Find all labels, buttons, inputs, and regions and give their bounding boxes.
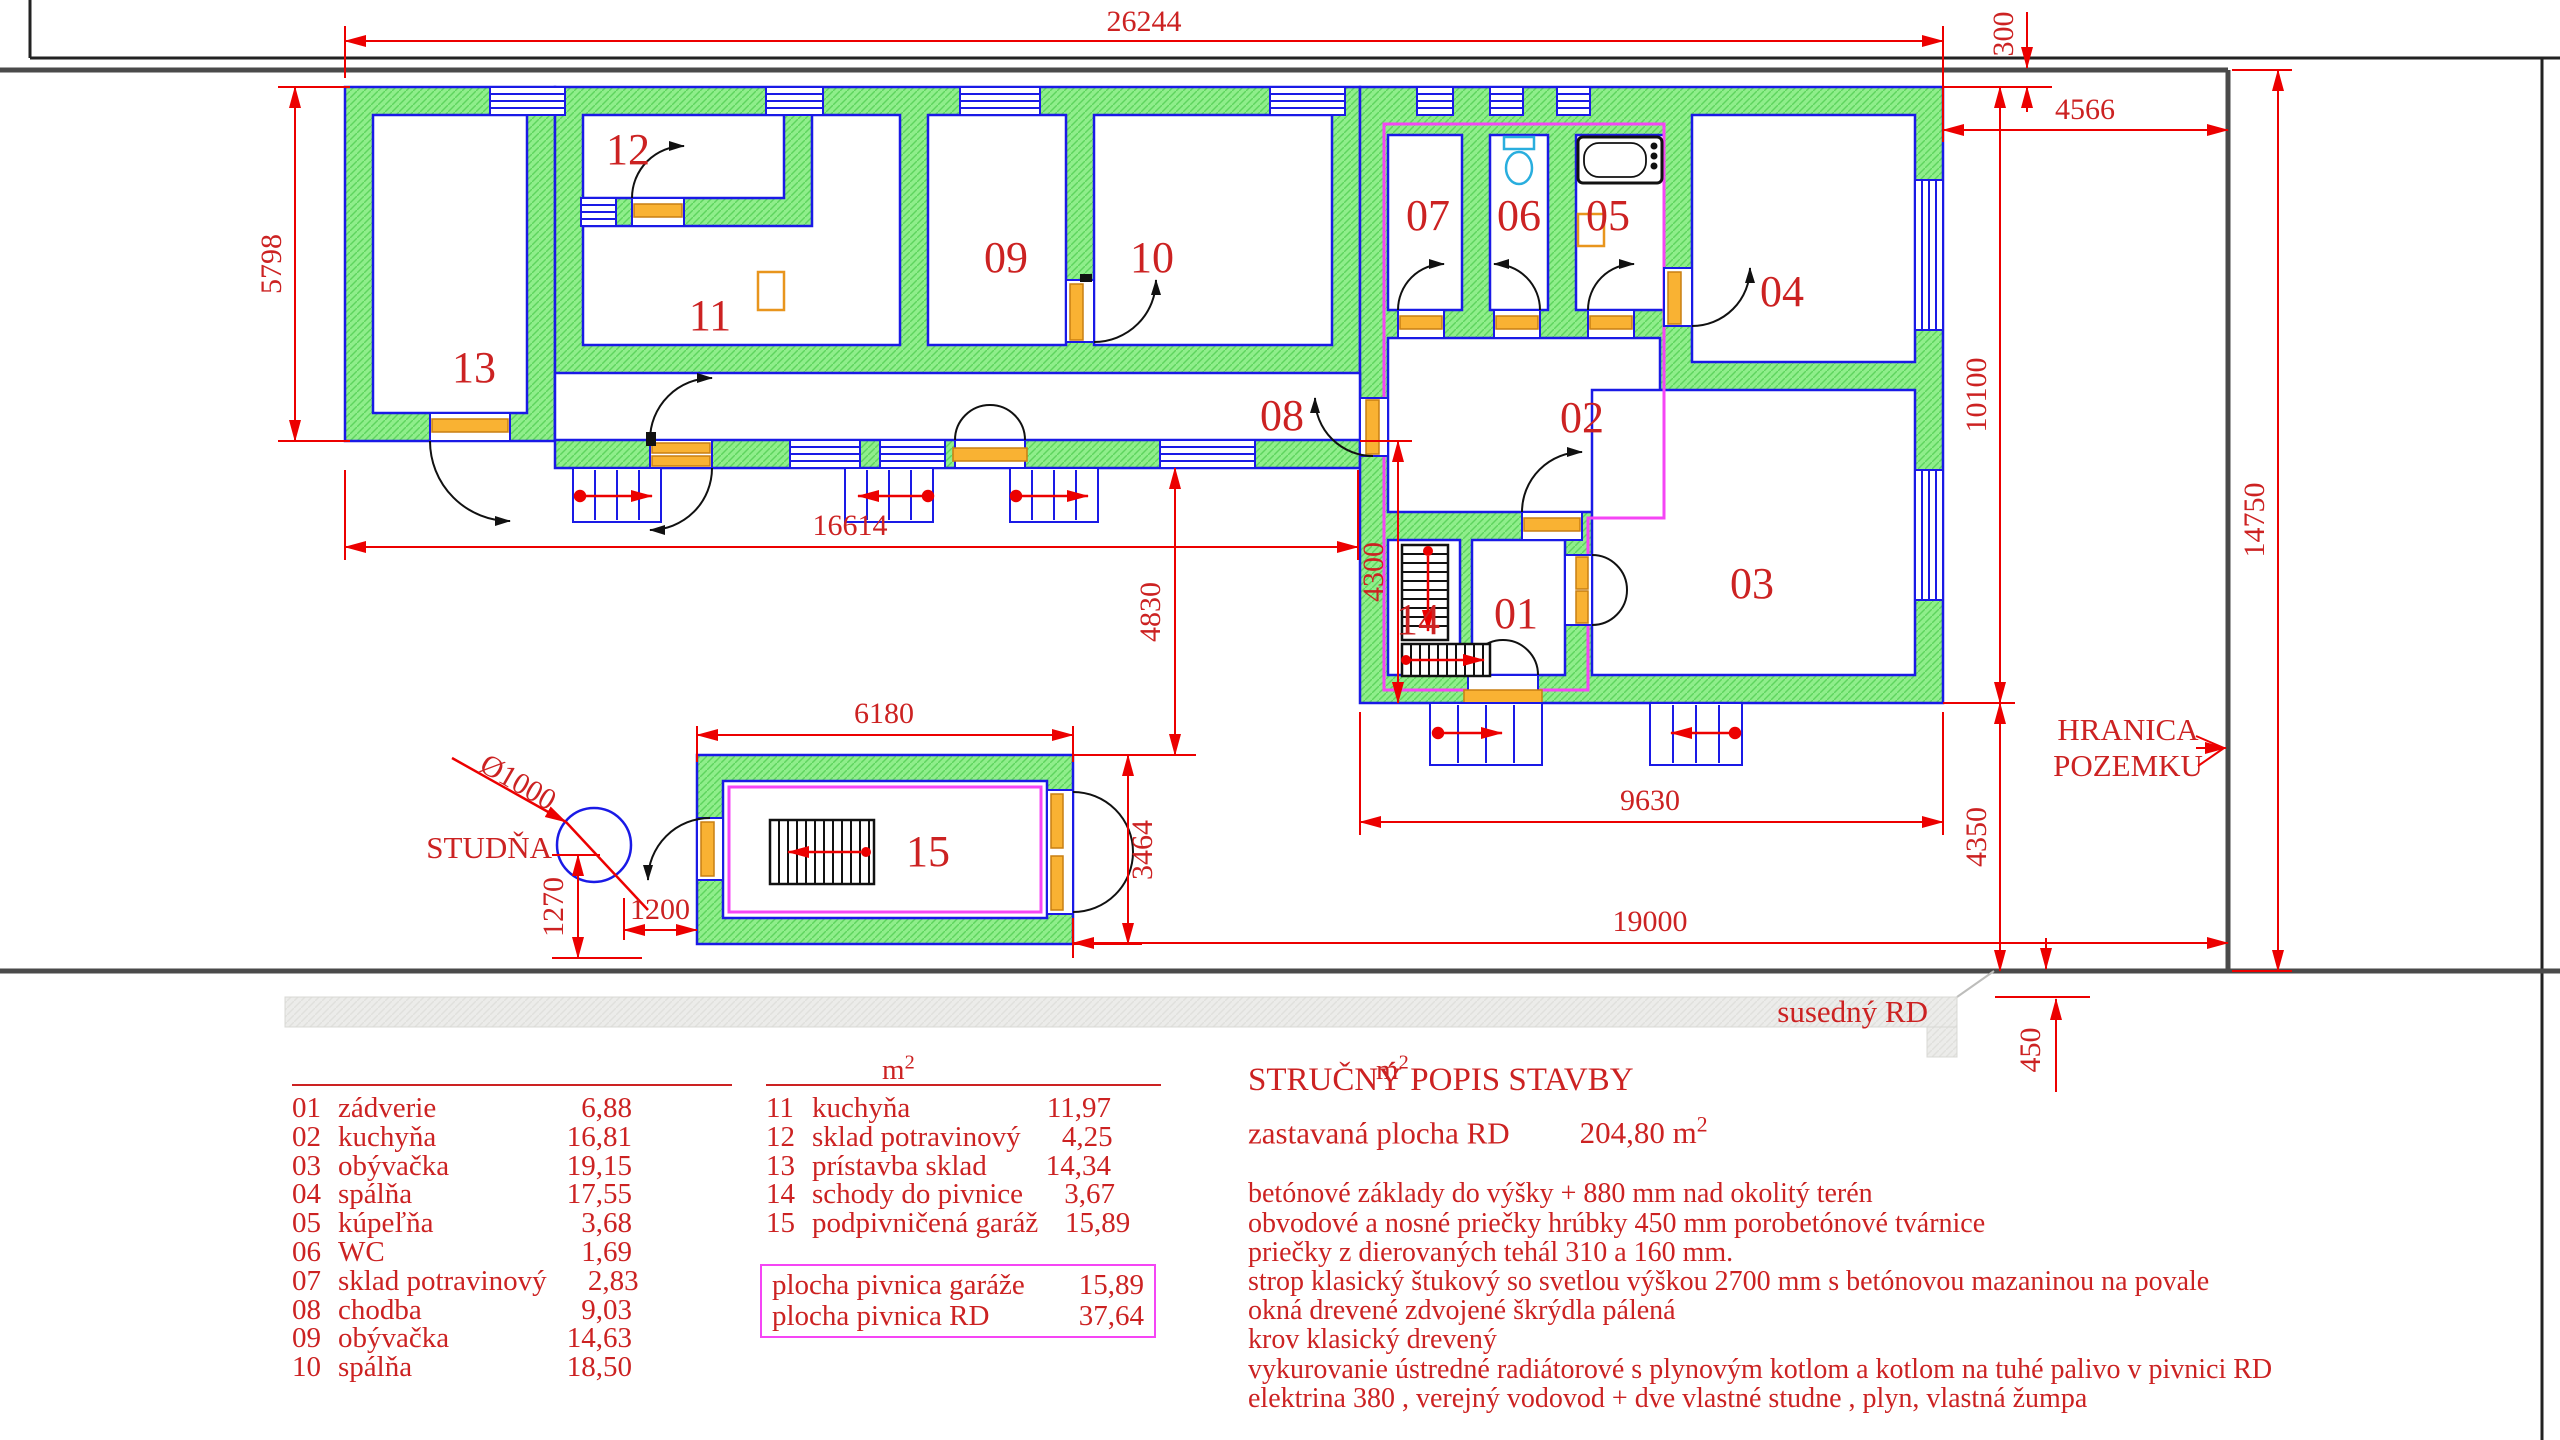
stairs-basement-lower	[1401, 644, 1490, 676]
bathtub-icon	[1578, 137, 1662, 183]
well-label: STUDŇA	[426, 830, 552, 865]
room-09	[928, 115, 1066, 345]
window-icon	[880, 440, 945, 468]
dim-top-offset: 300	[1943, 12, 2052, 113]
dim-site-height: 14750	[2232, 70, 2292, 971]
legend-row: 11kuchyňa11,97	[766, 1094, 1111, 1123]
legend-row: 01zádverie6,88	[292, 1094, 632, 1123]
window-icon	[1490, 87, 1523, 115]
legend-row: 02kuchyňa16,81	[292, 1123, 632, 1152]
window-icon	[1915, 470, 1943, 600]
legend-row: 05kúpeľňa3,68	[292, 1209, 632, 1238]
description-title: STRUČNÝ POPIS STAVBY	[1248, 1062, 2478, 1099]
room-04	[1692, 115, 1915, 362]
dim-right-offset: 4566	[1943, 93, 2228, 142]
window-icon	[960, 87, 1040, 115]
svg-text:4830: 4830	[1134, 582, 1167, 642]
legend-table-left: m2 01zádverie6,88 02kuchyňa16,81 03obýva…	[292, 1048, 732, 1382]
dim-south-gap: 4350	[1960, 703, 2000, 971]
cellar-area-row: plocha pivnica RD37,64	[772, 1301, 1144, 1332]
boundary-label-line2: POZEMKU	[2053, 748, 2203, 783]
room-label-12: 12	[606, 125, 650, 174]
legend-table-right: m2 11kuchyňa11,97 12sklad potravinový4,2…	[766, 1048, 1161, 1238]
dim-total-width: 26244	[345, 5, 1943, 95]
window-icon	[581, 198, 616, 226]
well-diameter-label: Ø1000	[475, 747, 562, 816]
room-label-13: 13	[452, 343, 496, 392]
room-label-11: 11	[689, 291, 731, 340]
window-icon	[1417, 87, 1453, 115]
svg-text:19000: 19000	[1613, 905, 1688, 938]
legend-row: 12sklad potravinový4,25	[766, 1123, 1111, 1152]
legend-right-header: m2	[766, 1048, 1161, 1086]
description-line: obvodové a nosné priečky hrúbky 450 mm p…	[1248, 1209, 2478, 1238]
dim-garage-height: 3464	[1073, 755, 1159, 944]
well-circle	[557, 808, 631, 882]
svg-text:16614: 16614	[813, 509, 888, 542]
cellar-area-row: plocha pivnica garáže15,89	[772, 1270, 1144, 1301]
legend-row: 08chodba9,03	[292, 1296, 632, 1325]
dim-right-height: 10100	[1943, 87, 2015, 703]
svg-text:9630: 9630	[1620, 784, 1680, 817]
svg-text:300: 300	[1987, 12, 2020, 57]
description-line: okná drevené zdvojené škrýdla pálená	[1248, 1296, 2478, 1325]
boundary-label-line1: HRANICA	[2057, 712, 2199, 747]
legend-row: 10spálňa18,50	[292, 1353, 632, 1382]
window-icon	[490, 87, 565, 115]
legend-row: 13prístavba sklad14,34	[766, 1152, 1111, 1181]
window-icon	[1915, 180, 1943, 330]
description-line: krov klasický drevený	[1248, 1325, 2478, 1354]
description-line: vykurovanie ústredné radiátorové s plyno…	[1248, 1355, 2478, 1384]
door-icon	[648, 818, 723, 880]
svg-text:1270: 1270	[537, 877, 570, 937]
double-door-icon	[1047, 790, 1133, 914]
dim-left-height: 5798	[255, 87, 350, 441]
room-label-05: 05	[1586, 191, 1630, 240]
room-label-15: 15	[906, 827, 950, 876]
description-line: priečky z dierovaných tehál 310 a 160 mm…	[1248, 1238, 2478, 1267]
window-icon	[1160, 440, 1255, 468]
built-area-line: zastavaná plocha RD204,80 m2	[1248, 1113, 2478, 1151]
room-label-02: 02	[1560, 393, 1604, 442]
legend-row: 04spálňa17,55	[292, 1180, 632, 1209]
legend-row: 09obývačka14,63	[292, 1324, 632, 1353]
room-03	[1592, 390, 1915, 675]
neighbor-house-label: susedný RD	[1777, 994, 1928, 1029]
cellar-area-box: plocha pivnica garáže15,89 plocha pivnic…	[760, 1264, 1156, 1338]
legend-row: 07sklad potravinový2,83	[292, 1267, 632, 1296]
window-icon	[1270, 87, 1345, 115]
dim-well-east: 1200	[624, 893, 697, 940]
floor-plan-page: { "plan": { "rooms": { "r01":"01","r02":…	[0, 0, 2560, 1440]
legend-row: 03obývačka19,15	[292, 1152, 632, 1181]
svg-text:14750: 14750	[2238, 483, 2271, 558]
boundary-label: HRANICA POZEMKU	[2053, 712, 2226, 783]
svg-text:3464: 3464	[1126, 820, 1159, 880]
svg-text:4300: 4300	[1357, 542, 1390, 602]
dim-garage-width: 6180	[697, 697, 1073, 762]
room-label-14: 14	[1396, 595, 1440, 644]
description-line: strop klasický štukový so svetlou výškou…	[1248, 1267, 2478, 1296]
dim-bottom-span: 19000	[1073, 905, 2228, 958]
legend-left-header: m2	[292, 1048, 732, 1086]
room-label-10: 10	[1130, 233, 1174, 282]
legend-row: 14schody do pivnice3,67	[766, 1180, 1111, 1209]
svg-text:5798: 5798	[255, 234, 288, 294]
room-label-09: 09	[984, 233, 1028, 282]
description-block: STRUČNÝ POPIS STAVBY zastavaná plocha RD…	[1248, 1062, 2478, 1413]
room-13	[373, 115, 527, 413]
room-10	[1094, 115, 1332, 345]
room-08-corridor	[555, 373, 1360, 440]
door-icon	[430, 413, 510, 521]
window-icon	[1557, 87, 1590, 115]
svg-text:4350: 4350	[1960, 807, 1993, 867]
room-label-04: 04	[1760, 267, 1804, 316]
toilet-icon	[1504, 137, 1534, 184]
svg-text:10100: 10100	[1960, 358, 1993, 433]
room-label-07: 07	[1406, 191, 1450, 240]
description-line: elektrina 380 , verejný vodovod + dve vl…	[1248, 1384, 2478, 1413]
legend-row: 06WC1,69	[292, 1238, 632, 1267]
room-label-06: 06	[1497, 191, 1541, 240]
svg-text:6180: 6180	[854, 697, 914, 730]
svg-text:26244: 26244	[1107, 5, 1182, 38]
room-label-03: 03	[1730, 559, 1774, 608]
description-line: betónové základy do výšky + 880 mm nad o…	[1248, 1179, 2478, 1208]
svg-text:4566: 4566	[2055, 93, 2115, 126]
room-label-01: 01	[1494, 589, 1538, 638]
window-icon	[790, 440, 860, 468]
legend-row: 15podpivničená garáž15,89	[766, 1209, 1111, 1238]
svg-text:1200: 1200	[630, 893, 690, 926]
stairs-garage	[770, 820, 874, 884]
room-label-08: 08	[1260, 391, 1304, 440]
window-icon	[766, 87, 823, 115]
stove-icon	[758, 272, 784, 310]
